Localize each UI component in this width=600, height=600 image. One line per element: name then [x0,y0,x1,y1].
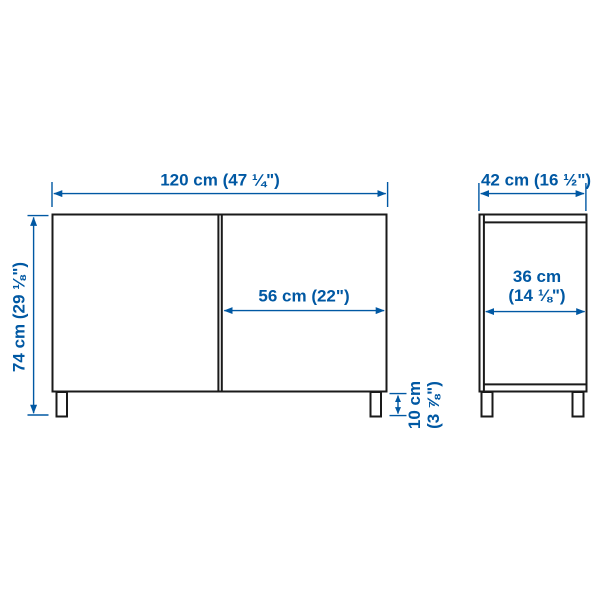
side-left-leg [482,392,493,417]
side-inner-depth-line1: 36 cm [508,267,565,286]
front-leg-height-dimension-arrow [390,394,407,416]
front-left-leg [57,392,68,417]
front-right-leg [371,392,382,417]
front-height-dimension-arrow [28,216,49,415]
front-leg-height-line2: (3 ⅞") [424,381,443,429]
side-right-leg [573,392,584,417]
side-view-drawing [480,215,587,417]
front-door-width-dimension-label: 56 cm (22") [258,287,349,306]
side-inner-depth-line2: (14 ⅛") [508,286,565,305]
side-depth-dimension-label: 42 cm (16 ½") [481,171,591,190]
front-width-dimension-label: 120 cm (47 ¼") [160,171,280,190]
front-leg-height-dimension-label: 10 cm (3 ⅞") [405,381,443,429]
dimension-diagram: 120 cm (47 ¼") 74 cm (29 ⅛") 56 cm (22")… [0,0,600,600]
front-view-drawing [53,215,387,417]
front-leg-height-line1: 10 cm [405,381,424,429]
side-inner-depth-dimension-label: 36 cm (14 ⅛") [508,267,565,305]
front-height-dimension-label: 74 cm (29 ⅛") [10,262,29,372]
